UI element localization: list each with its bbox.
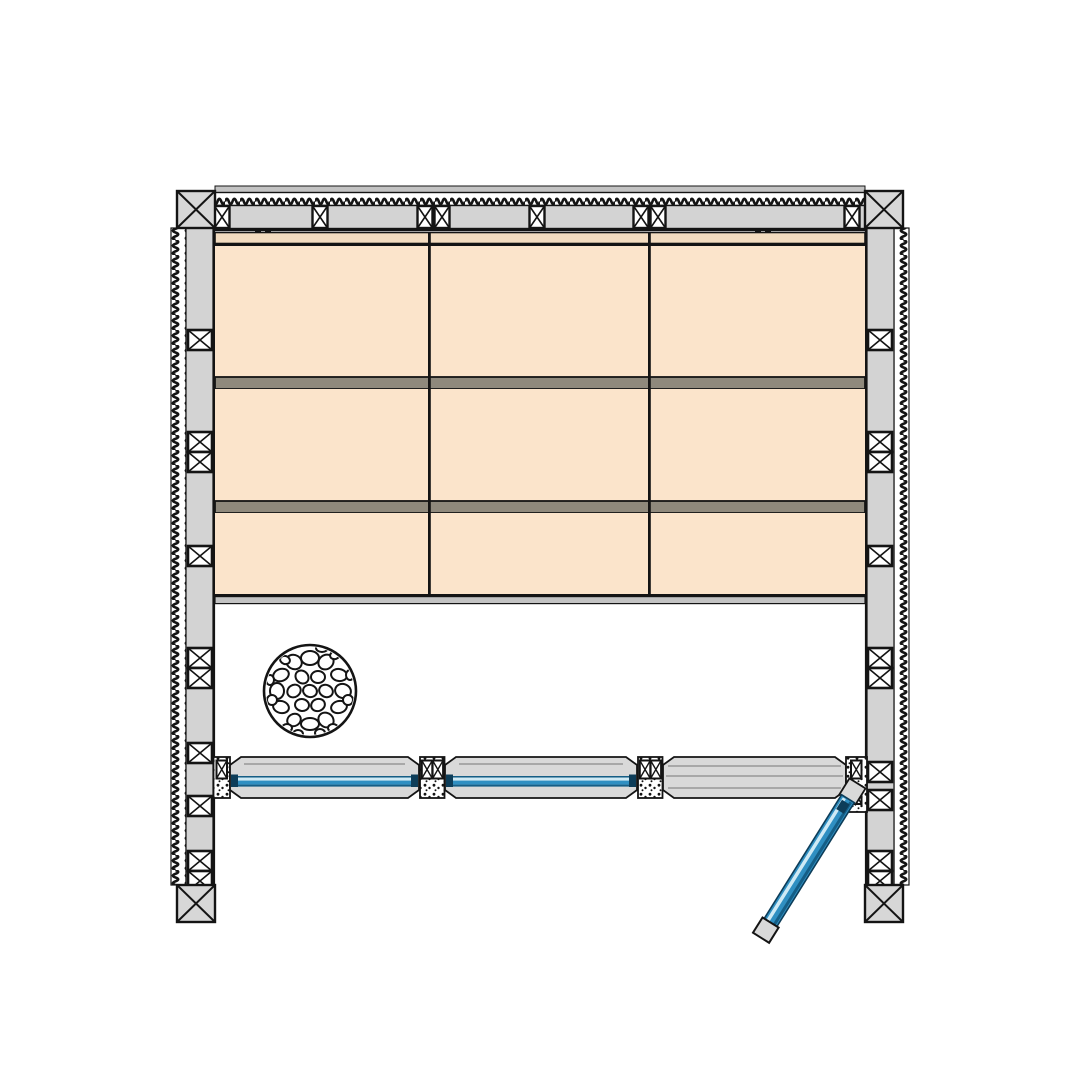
mullion-between-panels <box>420 757 445 798</box>
panel-top-trim-heavy-line <box>215 244 865 247</box>
x-stud-marker <box>651 206 666 228</box>
bench-panel <box>215 246 865 377</box>
x-stud-marker <box>188 546 212 566</box>
x-stud-marker <box>215 206 230 228</box>
mullion-left-junction <box>214 757 231 798</box>
panel-joint-vertical <box>428 233 431 597</box>
panel-joint-vertical <box>648 233 651 597</box>
corner-post-top-right <box>865 191 903 228</box>
mullion-between-panels <box>638 757 663 798</box>
x-stud-marker <box>418 206 433 228</box>
drawing-canvas <box>0 0 1080 1080</box>
right-wall <box>865 228 909 891</box>
panel-top-trim <box>215 233 865 244</box>
corner-post-bottom-right <box>865 885 903 922</box>
x-stud-marker <box>188 851 212 871</box>
door-bay-frame <box>663 757 846 798</box>
bench-panel <box>215 389 865 501</box>
x-stud-marker <box>845 206 860 228</box>
x-stud-marker <box>634 206 649 228</box>
x-stud-marker <box>313 206 328 228</box>
x-stud-marker <box>530 206 545 228</box>
glass-pane <box>231 775 418 788</box>
x-stud-marker <box>422 761 433 779</box>
glass-pane <box>446 775 636 788</box>
glass-endpoint <box>446 775 453 788</box>
x-stud-marker <box>188 648 212 668</box>
x-stud-marker <box>868 790 892 810</box>
corner-post-top-left <box>177 191 215 228</box>
stone-heater <box>264 644 356 738</box>
x-stud-marker <box>868 330 892 350</box>
x-stud-marker <box>851 761 862 779</box>
left-wall-insulation-band <box>171 228 186 885</box>
floor-plan-drawing <box>0 0 1080 1080</box>
x-stud-marker <box>188 432 212 452</box>
panel-grid <box>215 233 865 604</box>
x-stud-marker <box>433 761 444 779</box>
x-stud-marker <box>868 432 892 452</box>
panel-rail <box>215 377 865 389</box>
glass-endpoint <box>629 775 636 788</box>
x-stud-marker <box>868 762 892 782</box>
panel-rail <box>215 501 865 513</box>
x-stud-marker <box>435 206 450 228</box>
x-stud-marker <box>651 761 662 779</box>
right-wall-insulation-band <box>894 228 909 885</box>
glass-endpoint <box>231 775 238 788</box>
x-stud-marker <box>868 668 892 688</box>
left-wall <box>171 228 215 891</box>
glass-endpoint <box>411 775 418 788</box>
x-stud-marker <box>868 648 892 668</box>
x-stud-marker <box>868 851 892 871</box>
x-stud-marker <box>217 761 228 779</box>
corner-post-bottom-left <box>177 885 215 922</box>
x-stud-marker <box>188 743 212 763</box>
x-stud-marker <box>188 330 212 350</box>
glass-panel-frame <box>445 757 637 798</box>
x-stud-marker <box>188 796 212 816</box>
panel-bottom-trim <box>215 597 865 604</box>
x-stud-marker <box>868 452 892 472</box>
top-wall <box>215 186 866 235</box>
top-wall-outer-strip <box>215 186 865 193</box>
x-stud-marker <box>188 668 212 688</box>
top-wall-insulation-band <box>215 193 865 206</box>
bench-panel <box>215 513 865 594</box>
glass-panel-frame <box>230 757 419 798</box>
x-stud-marker <box>868 546 892 566</box>
x-stud-marker <box>640 761 651 779</box>
x-stud-marker <box>188 452 212 472</box>
